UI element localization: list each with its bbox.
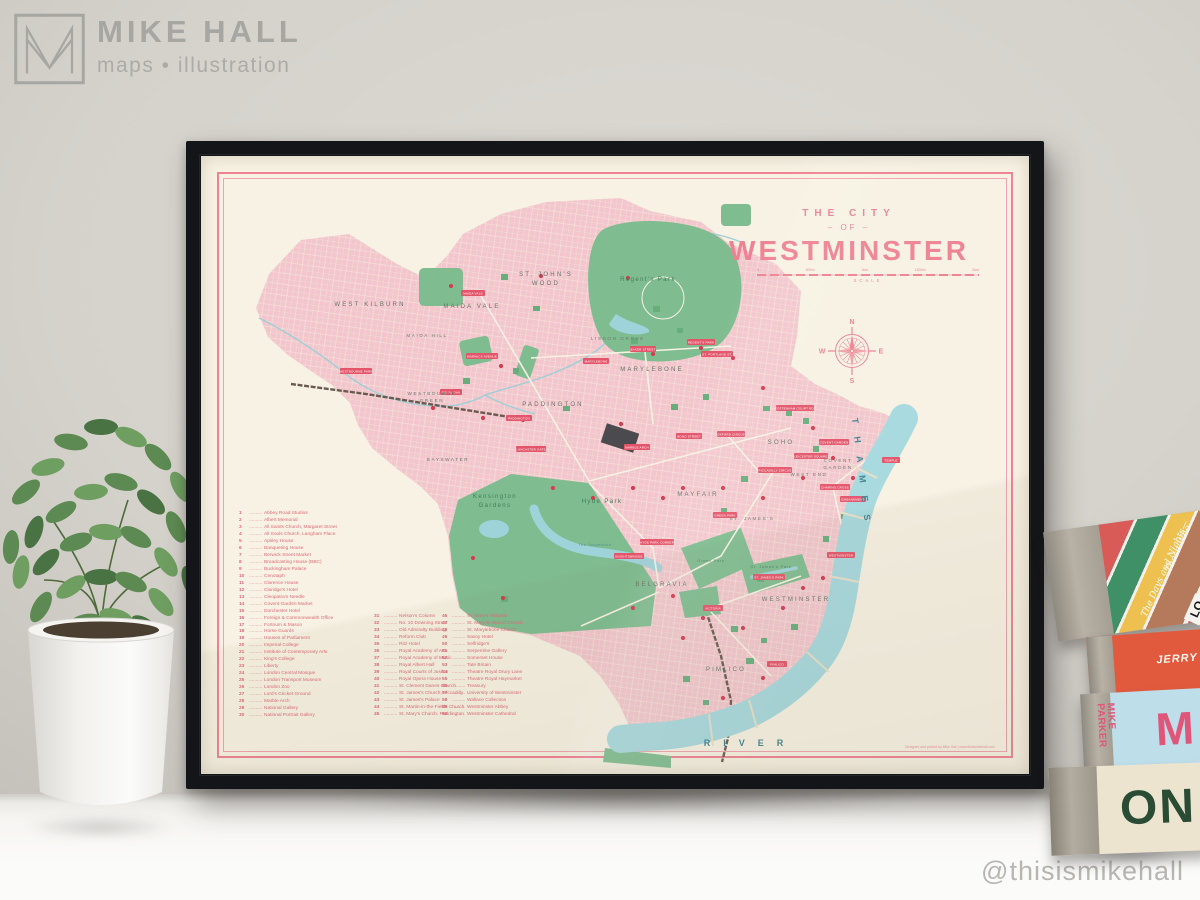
compass-east: E xyxy=(879,349,884,356)
legend-item: 59Westminster Abbey xyxy=(442,705,562,712)
legend-item-number: 37 xyxy=(374,656,384,661)
legend-leader-dots xyxy=(452,649,465,654)
legend-leader-dots xyxy=(384,649,397,654)
legend-item-number: 31 xyxy=(374,614,384,619)
legend-item-name: Serpentine Gallery xyxy=(465,649,507,654)
legend-leader-dots xyxy=(384,705,397,710)
legend-leader-dots xyxy=(249,657,262,662)
legend-item-number: 36 xyxy=(374,649,384,654)
legend-item-name: London Zoo xyxy=(262,685,290,690)
legend-leader-dots xyxy=(249,685,262,690)
station-badge: BOND STREET xyxy=(676,433,702,439)
legend-item-number: 50 xyxy=(442,642,452,647)
legend-item-number: 47 xyxy=(442,621,452,626)
legend-item-number: 57 xyxy=(442,691,452,696)
legend-item-number: 24 xyxy=(239,671,249,676)
station-badge: KNIGHTSBRIDGE xyxy=(614,553,644,559)
scale-tick: 1500m xyxy=(915,268,926,272)
scale-tick: 1km xyxy=(861,268,868,272)
legend-item: 4All Souls Church, Langham Place xyxy=(239,532,374,539)
legend-item-name: Fortnum & Mason xyxy=(262,623,302,628)
svg-text:MARYLEBONE: MARYLEBONE xyxy=(585,359,608,363)
legend-leader-dots xyxy=(249,650,262,655)
legend-item-name: Reform Club xyxy=(397,635,426,640)
legend-item: 17Fortnum & Mason xyxy=(239,623,374,630)
station-badge: PADDINGTON xyxy=(506,415,532,421)
legend-item-name: University of Westminster xyxy=(465,691,521,696)
legend-item-number: 11 xyxy=(239,581,249,586)
legend-item: 50Selfridge's xyxy=(442,642,562,649)
label-lisson-grove: LISSON GROVE xyxy=(591,336,645,341)
legend-item-name: Savoy Hotel xyxy=(465,635,493,640)
legend-item: 52Somerset House xyxy=(442,656,562,663)
legend-leader-dots xyxy=(384,635,397,640)
picture-frame: WESTBOURNE PARK ROYAL OAK WARWICK AVENUE… xyxy=(186,141,1044,789)
label-maida-hill: MAIDA HILL xyxy=(406,333,447,338)
label-maida-vale: MAIDA VALE xyxy=(443,304,500,310)
legend-item-number: 39 xyxy=(374,670,384,675)
legend-item: 3All Saints Church, Margaret Street xyxy=(239,525,374,532)
legend-item-number: 10 xyxy=(239,574,249,579)
legend-item-number: 16 xyxy=(239,616,249,621)
legend-item-name: Houses of Parliament xyxy=(262,636,310,641)
legend-item-name: King's College xyxy=(262,657,295,662)
legend-item: 16Foreign & Commonwealth Office xyxy=(239,616,374,623)
legend-item-number: 4 xyxy=(239,532,249,537)
legend-leader-dots xyxy=(249,588,262,593)
svg-text:HYDE PARK CORNER: HYDE PARK CORNER xyxy=(640,540,675,544)
svg-text:WARWICK AVENUE: WARWICK AVENUE xyxy=(467,354,497,358)
legend-item-name: St. Mary's Hospital xyxy=(465,614,507,619)
station-badge: TOTTENHAM COURT RD. xyxy=(775,405,815,411)
scale-bar: 0500m1km1500m2km SCALE xyxy=(757,268,979,283)
legend-item-name: Claridge's Hotel xyxy=(262,588,298,593)
label-belgravia: BELGRAVIA xyxy=(635,582,688,588)
legend-item-name: Royal Opera House xyxy=(397,677,441,682)
legend-item: 5Apsley House xyxy=(239,539,374,546)
legend-item: 46St. Mary's Hospital xyxy=(442,614,562,621)
legend-item-name: All Souls Church, Langham Place xyxy=(262,532,335,537)
legend-leader-dots xyxy=(249,616,262,621)
legend-item-name: Clarence House xyxy=(262,581,298,586)
legend-item-number: 26 xyxy=(239,685,249,690)
legend-item-name: All Saints Church, Margaret Street xyxy=(262,525,337,530)
legend-item-name: Royal Courts of Justice xyxy=(397,670,448,675)
legend-leader-dots xyxy=(249,539,262,544)
legend-item: 10Cenotaph xyxy=(239,574,374,581)
legend-item-name: Somerset House xyxy=(465,656,503,661)
legend-leader-dots xyxy=(249,581,262,586)
legend-item: 12Claridge's Hotel xyxy=(239,588,374,595)
legend-item-number: 8 xyxy=(239,560,249,565)
legend-leader-dots xyxy=(249,692,262,697)
legend-leader-dots xyxy=(452,635,465,640)
legend-item: 21Institute of Contemporary Arts xyxy=(239,650,374,657)
legend-item-name: Theatre Royal Haymarket xyxy=(465,677,522,682)
legend-leader-dots xyxy=(452,628,465,633)
legend-item: 51Serpentine Gallery xyxy=(442,649,562,656)
svg-text:REGENT'S PARK: REGENT'S PARK xyxy=(688,340,714,344)
legend-item-name: Theatre Royal Drury Lane xyxy=(465,670,522,675)
svg-text:MAIDA VALE: MAIDA VALE xyxy=(463,291,483,295)
map-poster: WESTBOURNE PARK ROYAL OAK WARWICK AVENUE… xyxy=(201,156,1029,774)
legend-item-name: St. Marylebone Church xyxy=(465,628,516,633)
legend-item-number: 23 xyxy=(239,664,249,669)
legend-item-number: 12 xyxy=(239,588,249,593)
label-river: RIVER xyxy=(704,738,797,748)
legend-item-name: Royal Albert Hall xyxy=(397,663,434,668)
legend-item-number: 5 xyxy=(239,539,249,544)
legend-leader-dots xyxy=(452,614,465,619)
legend-item-number: 48 xyxy=(442,628,452,633)
legend-item-number: 43 xyxy=(374,698,384,703)
title-westminster: WESTMINSTER xyxy=(689,235,1009,267)
legend-item-name: London Central Mosque xyxy=(262,671,315,676)
label-bayswater: BAYSWATER xyxy=(427,457,469,462)
legend-item-number: 29 xyxy=(239,706,249,711)
legend-leader-dots xyxy=(249,525,262,530)
station-badge: CHARING CROSS xyxy=(820,484,850,490)
legend-item-name: Westminster Abbey xyxy=(465,705,508,710)
legend-item-number: 59 xyxy=(442,705,452,710)
legend-leader-dots xyxy=(384,670,397,675)
legend-item-name: Cleopatra's Needle xyxy=(262,595,305,600)
legend-item-number: 18 xyxy=(239,629,249,634)
product-photo-scene: MIKE HALL maps • illustration @thisismik… xyxy=(0,0,1200,900)
legend-item-number: 54 xyxy=(442,670,452,675)
legend-item-name: No. 10 Downing Street xyxy=(397,621,447,626)
legend-leader-dots xyxy=(249,602,262,607)
legend-leader-dots xyxy=(249,643,262,648)
book-spine-text: JERRY xyxy=(1156,652,1198,667)
legend-item: 1Abbey Road Studios xyxy=(239,511,374,518)
legend-item-name: Abbey Road Studios xyxy=(262,511,308,516)
credit-line: Designed and printed by Mike Hall | www.… xyxy=(905,745,995,749)
label-st-jamess-park: St. James's Park xyxy=(750,565,791,569)
mike-hall-monogram-icon xyxy=(12,11,87,87)
legend-item-number: 46 xyxy=(442,614,452,619)
legend-item-number: 17 xyxy=(239,623,249,628)
legend-leader-dots xyxy=(384,684,397,689)
legend-leader-dots xyxy=(384,614,397,619)
legend-item-number: 20 xyxy=(239,643,249,648)
legend-item-name: Apsley House xyxy=(262,539,294,544)
legend-item: 2Albert Memorial xyxy=(239,518,374,525)
legend-item-number: 3 xyxy=(239,525,249,530)
legend-item-name: Imperial College xyxy=(262,643,299,648)
label-pimlico: PIMLICO xyxy=(706,667,746,673)
round-pond xyxy=(479,520,509,538)
legend-item-name: Foreign & Commonwealth Office xyxy=(262,616,333,621)
legend-item: 57University of Westminster xyxy=(442,691,562,698)
svg-text:CHARING CROSS: CHARING CROSS xyxy=(821,485,849,489)
svg-text:OXFORD CIRCUS: OXFORD CIRCUS xyxy=(717,432,745,436)
legend-item-number: 22 xyxy=(239,657,249,662)
book-pages xyxy=(1086,635,1116,697)
legend-item-name: Ritz Hotel xyxy=(397,642,420,647)
svg-text:TOTTENHAM COURT RD.: TOTTENHAM COURT RD. xyxy=(775,406,815,410)
label-st-jamess: ST. JAMES'S xyxy=(730,516,775,521)
legend-leader-dots xyxy=(249,678,262,683)
legend-leader-dots xyxy=(249,609,262,614)
svg-text:ST. JAMES'S PARK: ST. JAMES'S PARK xyxy=(754,575,784,579)
station-badge: LANCASTER GATE xyxy=(516,446,546,452)
book-title-initial: M xyxy=(1154,700,1195,756)
legend-item-name: National Portrait Gallery xyxy=(262,713,315,718)
legend-item-name: London Transport Museum xyxy=(262,678,321,683)
legend-leader-dots xyxy=(452,698,465,703)
legend-leader-dots xyxy=(452,642,465,647)
legend-leader-dots xyxy=(384,621,397,626)
legend-item: 15Dorchester Hotel xyxy=(239,609,374,616)
scale-tick-labels: 0500m1km1500m2km xyxy=(757,268,979,272)
legend-leader-dots xyxy=(249,671,262,676)
legend-column-1: 1Abbey Road Studios2Albert Memorial3All … xyxy=(239,511,374,720)
legend-item: 14Covent Garden Market xyxy=(239,602,374,609)
legend-item-number: 13 xyxy=(239,595,249,600)
book-cream: ON xyxy=(1049,762,1200,855)
legend-item-number: 40 xyxy=(374,677,384,682)
legend-leader-dots xyxy=(384,698,397,703)
legend-item: 6Banqueting House xyxy=(239,546,374,553)
compass-rose: N E S W xyxy=(812,311,892,391)
legend-item-name: Treasury xyxy=(465,684,486,689)
legend-item-name: Westminster Cathedral xyxy=(465,712,516,717)
legend-item-name: Banqueting House xyxy=(262,546,303,551)
legend-item-name: Dorchester Hotel xyxy=(262,609,300,614)
station-badge: HYDE PARK CORNER xyxy=(640,539,675,545)
label-soho: SOHO xyxy=(768,440,794,446)
scale-tick: 500m xyxy=(806,268,815,272)
legend-item-number: 2 xyxy=(239,518,249,523)
legend-item: 19Houses of Parliament xyxy=(239,636,374,643)
legend-item-name: Buckingham Palace xyxy=(262,567,306,572)
legend-leader-dots xyxy=(249,629,262,634)
label-regents-park: Regent's Park xyxy=(620,277,676,283)
label-st-johns-wood-1: ST. JOHN'S xyxy=(519,272,573,278)
compass-north: N xyxy=(849,319,854,326)
scale-word: SCALE xyxy=(757,278,979,283)
legend-item-number: 45 xyxy=(374,712,384,717)
legend-item-number: 41 xyxy=(374,684,384,689)
legend-item-number: 56 xyxy=(442,684,452,689)
legend-item-number: 34 xyxy=(374,635,384,640)
station-badge: VICTORIA xyxy=(703,605,723,611)
legend-item: 54Theatre Royal Drury Lane xyxy=(442,670,562,677)
station-badge: REGENT'S PARK xyxy=(687,339,715,345)
legend-item: 8Broadcasting House (BBC) xyxy=(239,560,374,567)
legend-item-name: St. James's Palace xyxy=(397,698,440,703)
book-spine-label: LO xyxy=(1184,593,1200,625)
book-blue: MIKE PARKER M xyxy=(1080,688,1200,771)
label-west-kilburn: WEST KILBURN xyxy=(334,302,405,308)
legend-leader-dots xyxy=(384,642,397,647)
legend-leader-dots xyxy=(249,595,262,600)
legend-item: 56Treasury xyxy=(442,684,562,691)
book-stack: The Days and Nights— —Those Who LO JERRY… xyxy=(1050,515,1200,865)
legend-leader-dots xyxy=(384,691,397,696)
legend-item-name: National Gallery xyxy=(262,706,298,711)
legend-item: 47St. Mary-le-Strand Church xyxy=(442,621,562,628)
legend-item-name: Horse Guards xyxy=(262,629,294,634)
legend-item-number: 25 xyxy=(239,678,249,683)
legend-item: 48St. Marylebone Church xyxy=(442,628,562,635)
station-badge: PICCADILLY CIRCUS xyxy=(758,467,792,473)
legend-item-number: 58 xyxy=(442,698,452,703)
label-west-end: WEST END xyxy=(791,472,828,477)
plant-pot xyxy=(28,618,174,805)
legend-leader-dots xyxy=(249,623,262,628)
legend-leader-dots xyxy=(452,712,465,717)
station-badge: ST. JAMES'S PARK xyxy=(753,574,785,580)
book-spine-text: ON xyxy=(1119,779,1197,837)
label-covent-garden-2: GARDEN xyxy=(823,465,852,470)
title-of: – OF – xyxy=(689,223,1009,232)
legend-leader-dots xyxy=(249,532,262,537)
svg-text:PADDINGTON: PADDINGTON xyxy=(508,416,530,420)
legend-leader-dots xyxy=(452,663,465,668)
legend-item-number: 55 xyxy=(442,677,452,682)
legend-leader-dots xyxy=(249,546,262,551)
legend-item-name: Nelson's Column xyxy=(397,614,435,619)
station-badge: MAIDA VALE xyxy=(461,290,485,296)
legend-item-name: Berwick Street Market xyxy=(262,553,311,558)
legend-item-name: Cenotaph xyxy=(262,574,285,579)
brand-name: MIKE HALL xyxy=(97,14,302,50)
legend-leader-dots xyxy=(249,699,262,704)
legend-item: 30National Portrait Gallery xyxy=(239,713,374,720)
legend-leader-dots xyxy=(249,706,262,711)
legend-item-number: 33 xyxy=(374,628,384,633)
legend-item-number: 27 xyxy=(239,692,249,697)
scale-tick: 2km xyxy=(972,268,979,272)
compass-west: W xyxy=(819,349,826,356)
legend-leader-dots xyxy=(452,684,465,689)
station-badge: GT. PORTLAND ST. xyxy=(701,351,733,357)
label-marylebone: MARYLEBONE xyxy=(620,367,684,373)
legend-item: 58Wallace Collection xyxy=(442,698,562,705)
legend-item-number: 52 xyxy=(442,656,452,661)
svg-text:MARBLE ARCH: MARBLE ARCH xyxy=(625,445,649,449)
station-badge: MARBLE ARCH xyxy=(624,444,650,450)
legend-item-number: 7 xyxy=(239,553,249,558)
poster-title-block: THE CITY – OF – WESTMINSTER xyxy=(689,208,1009,267)
brand-watermark: MIKE HALL maps • illustration xyxy=(97,14,302,78)
legend-item-number: 9 xyxy=(239,567,249,572)
label-mayfair: MAYFAIR xyxy=(677,492,718,498)
legend-item-name: Tate Britain xyxy=(465,663,491,668)
scale-tick: 0 xyxy=(757,268,759,272)
svg-text:PIMLICO: PIMLICO xyxy=(770,662,784,666)
station-badge: COVENT GARDEN xyxy=(819,439,849,445)
svg-text:BOND STREET: BOND STREET xyxy=(677,434,701,438)
paddington-rec-ground xyxy=(419,268,463,306)
legend-leader-dots xyxy=(452,670,465,675)
legend-item-name: Broadcasting House (BBC) xyxy=(262,560,322,565)
label-westbourne-green-2: GREEN xyxy=(420,398,444,403)
legend-item-number: 60 xyxy=(442,712,452,717)
brand-tagline: maps • illustration xyxy=(97,54,302,78)
label-westbourne-green-1: WESTBOURNE xyxy=(408,391,457,396)
title-the-city: THE CITY xyxy=(689,208,1009,219)
label-kensington-gardens-2: Gardens xyxy=(479,503,512,509)
legend-item-number: 28 xyxy=(239,699,249,704)
legend-item-number: 30 xyxy=(239,713,249,718)
book-spine: The Days and Nights— —Those Who LO xyxy=(1099,511,1200,634)
book-striped: The Days and Nights— —Those Who LO xyxy=(1043,511,1200,642)
legend-leader-dots xyxy=(452,656,465,661)
legend-item: 13Cleopatra's Needle xyxy=(239,595,374,602)
legend-leader-dots xyxy=(384,712,397,717)
book-author: MIKE PARKER xyxy=(1095,703,1118,764)
station-badge: WESTMINSTER xyxy=(827,552,855,558)
legend-leader-dots xyxy=(249,664,262,669)
svg-text:BAKER STREET: BAKER STREET xyxy=(630,347,655,351)
station-badge: WARWICK AVENUE xyxy=(466,353,498,359)
station-badge: BAKER STREET xyxy=(630,346,656,352)
svg-text:WESTMINSTER: WESTMINSTER xyxy=(829,553,854,557)
legend-leader-dots xyxy=(384,628,397,633)
label-st-johns-wood-2: WOOD xyxy=(532,281,560,287)
legend-item-name: Selfridge's xyxy=(465,642,489,647)
legend-item-number: 44 xyxy=(374,705,384,710)
legend-item-number: 51 xyxy=(442,649,452,654)
scale-bar-line xyxy=(757,274,979,276)
legend-item-number: 19 xyxy=(239,636,249,641)
label-paddington: PADDINGTON xyxy=(522,402,583,408)
label-kensington-gardens-1: Kensington xyxy=(473,494,517,500)
legend-item-name: Liberty xyxy=(262,664,278,669)
svg-text:VICTORIA: VICTORIA xyxy=(705,606,721,610)
legend-item: 25London Transport Museum xyxy=(239,678,374,685)
legend-item-name: Old Admiralty Building xyxy=(397,628,446,633)
label-hyde-park: Hyde Park xyxy=(582,499,623,505)
legend-item-number: 49 xyxy=(442,635,452,640)
legend-item: 11Clarence House xyxy=(239,581,374,588)
legend-leader-dots xyxy=(249,518,262,523)
legend-leader-dots xyxy=(452,621,465,626)
legend-item-name: St. Mary-le-Strand Church xyxy=(465,621,523,626)
legend-column-3: 46St. Mary's Hospital47St. Mary-le-Stran… xyxy=(442,614,562,719)
station-badge: MARYLEBONE xyxy=(583,358,609,364)
legend-leader-dots xyxy=(249,574,262,579)
svg-text:PICCADILLY CIRCUS: PICCADILLY CIRCUS xyxy=(759,468,792,472)
legend-item-number: 1 xyxy=(239,511,249,516)
legend-leader-dots xyxy=(452,677,465,682)
svg-text:WESTBOURNE PARK: WESTBOURNE PARK xyxy=(339,369,372,373)
legend-item: 60Westminster Cathedral xyxy=(442,712,562,719)
svg-text:LANCASTER GATE: LANCASTER GATE xyxy=(516,447,546,451)
legend-item: 22King's College xyxy=(239,657,374,664)
label-covent-garden-1: COVENT xyxy=(824,458,853,463)
legend-item-number: 6 xyxy=(239,546,249,551)
legend-leader-dots xyxy=(384,656,397,661)
label-green-park: Green Park xyxy=(697,559,724,563)
legend-item: 53Tate Britain xyxy=(442,663,562,670)
station-badge: OXFORD CIRCUS xyxy=(717,431,745,437)
legend-item-name: Marble Arch xyxy=(262,699,290,704)
legend-item: 7Berwick Street Market xyxy=(239,553,374,560)
legend-item-name: Institute of Contemporary Arts xyxy=(262,650,327,655)
book-orange: JERRY xyxy=(1086,629,1200,697)
legend-item: 27Lord's Cricket Ground xyxy=(239,692,374,699)
label-westminster: WESTMINSTER xyxy=(762,597,831,603)
station-badge: PIMLICO xyxy=(767,661,787,667)
legend-leader-dots xyxy=(249,713,262,718)
station-badge: WESTBOURNE PARK xyxy=(339,368,372,374)
svg-text:KNIGHTSBRIDGE: KNIGHTSBRIDGE xyxy=(615,554,642,558)
legend-leader-dots xyxy=(384,663,397,668)
